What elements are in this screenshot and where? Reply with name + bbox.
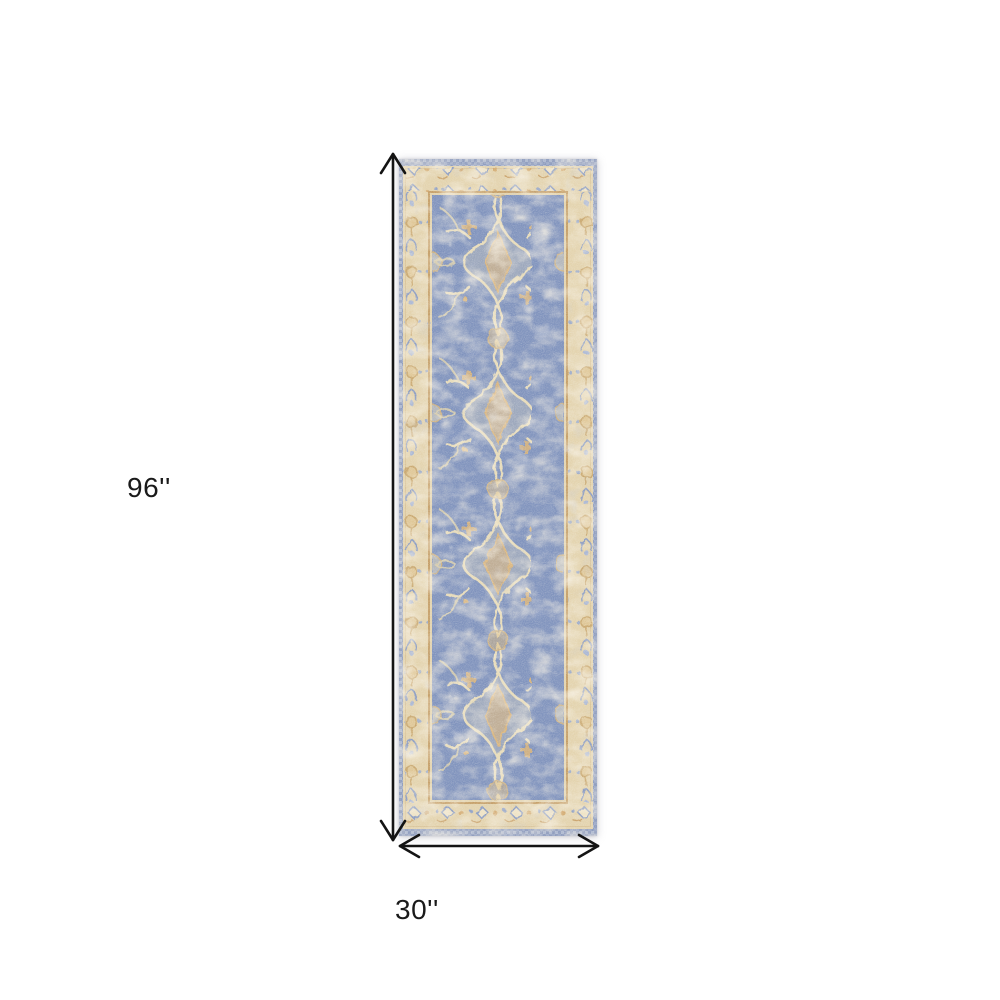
height-dimension-arrow-icon (377, 146, 409, 848)
rug-image (399, 159, 597, 836)
width-dimension-label: 30'' (395, 896, 439, 924)
height-dimension-label: 96'' (127, 474, 171, 502)
rug-graphic (399, 159, 597, 836)
width-dimension-arrow-icon (393, 831, 605, 861)
dimension-diagram: 96'' 30'' (0, 0, 1000, 1000)
